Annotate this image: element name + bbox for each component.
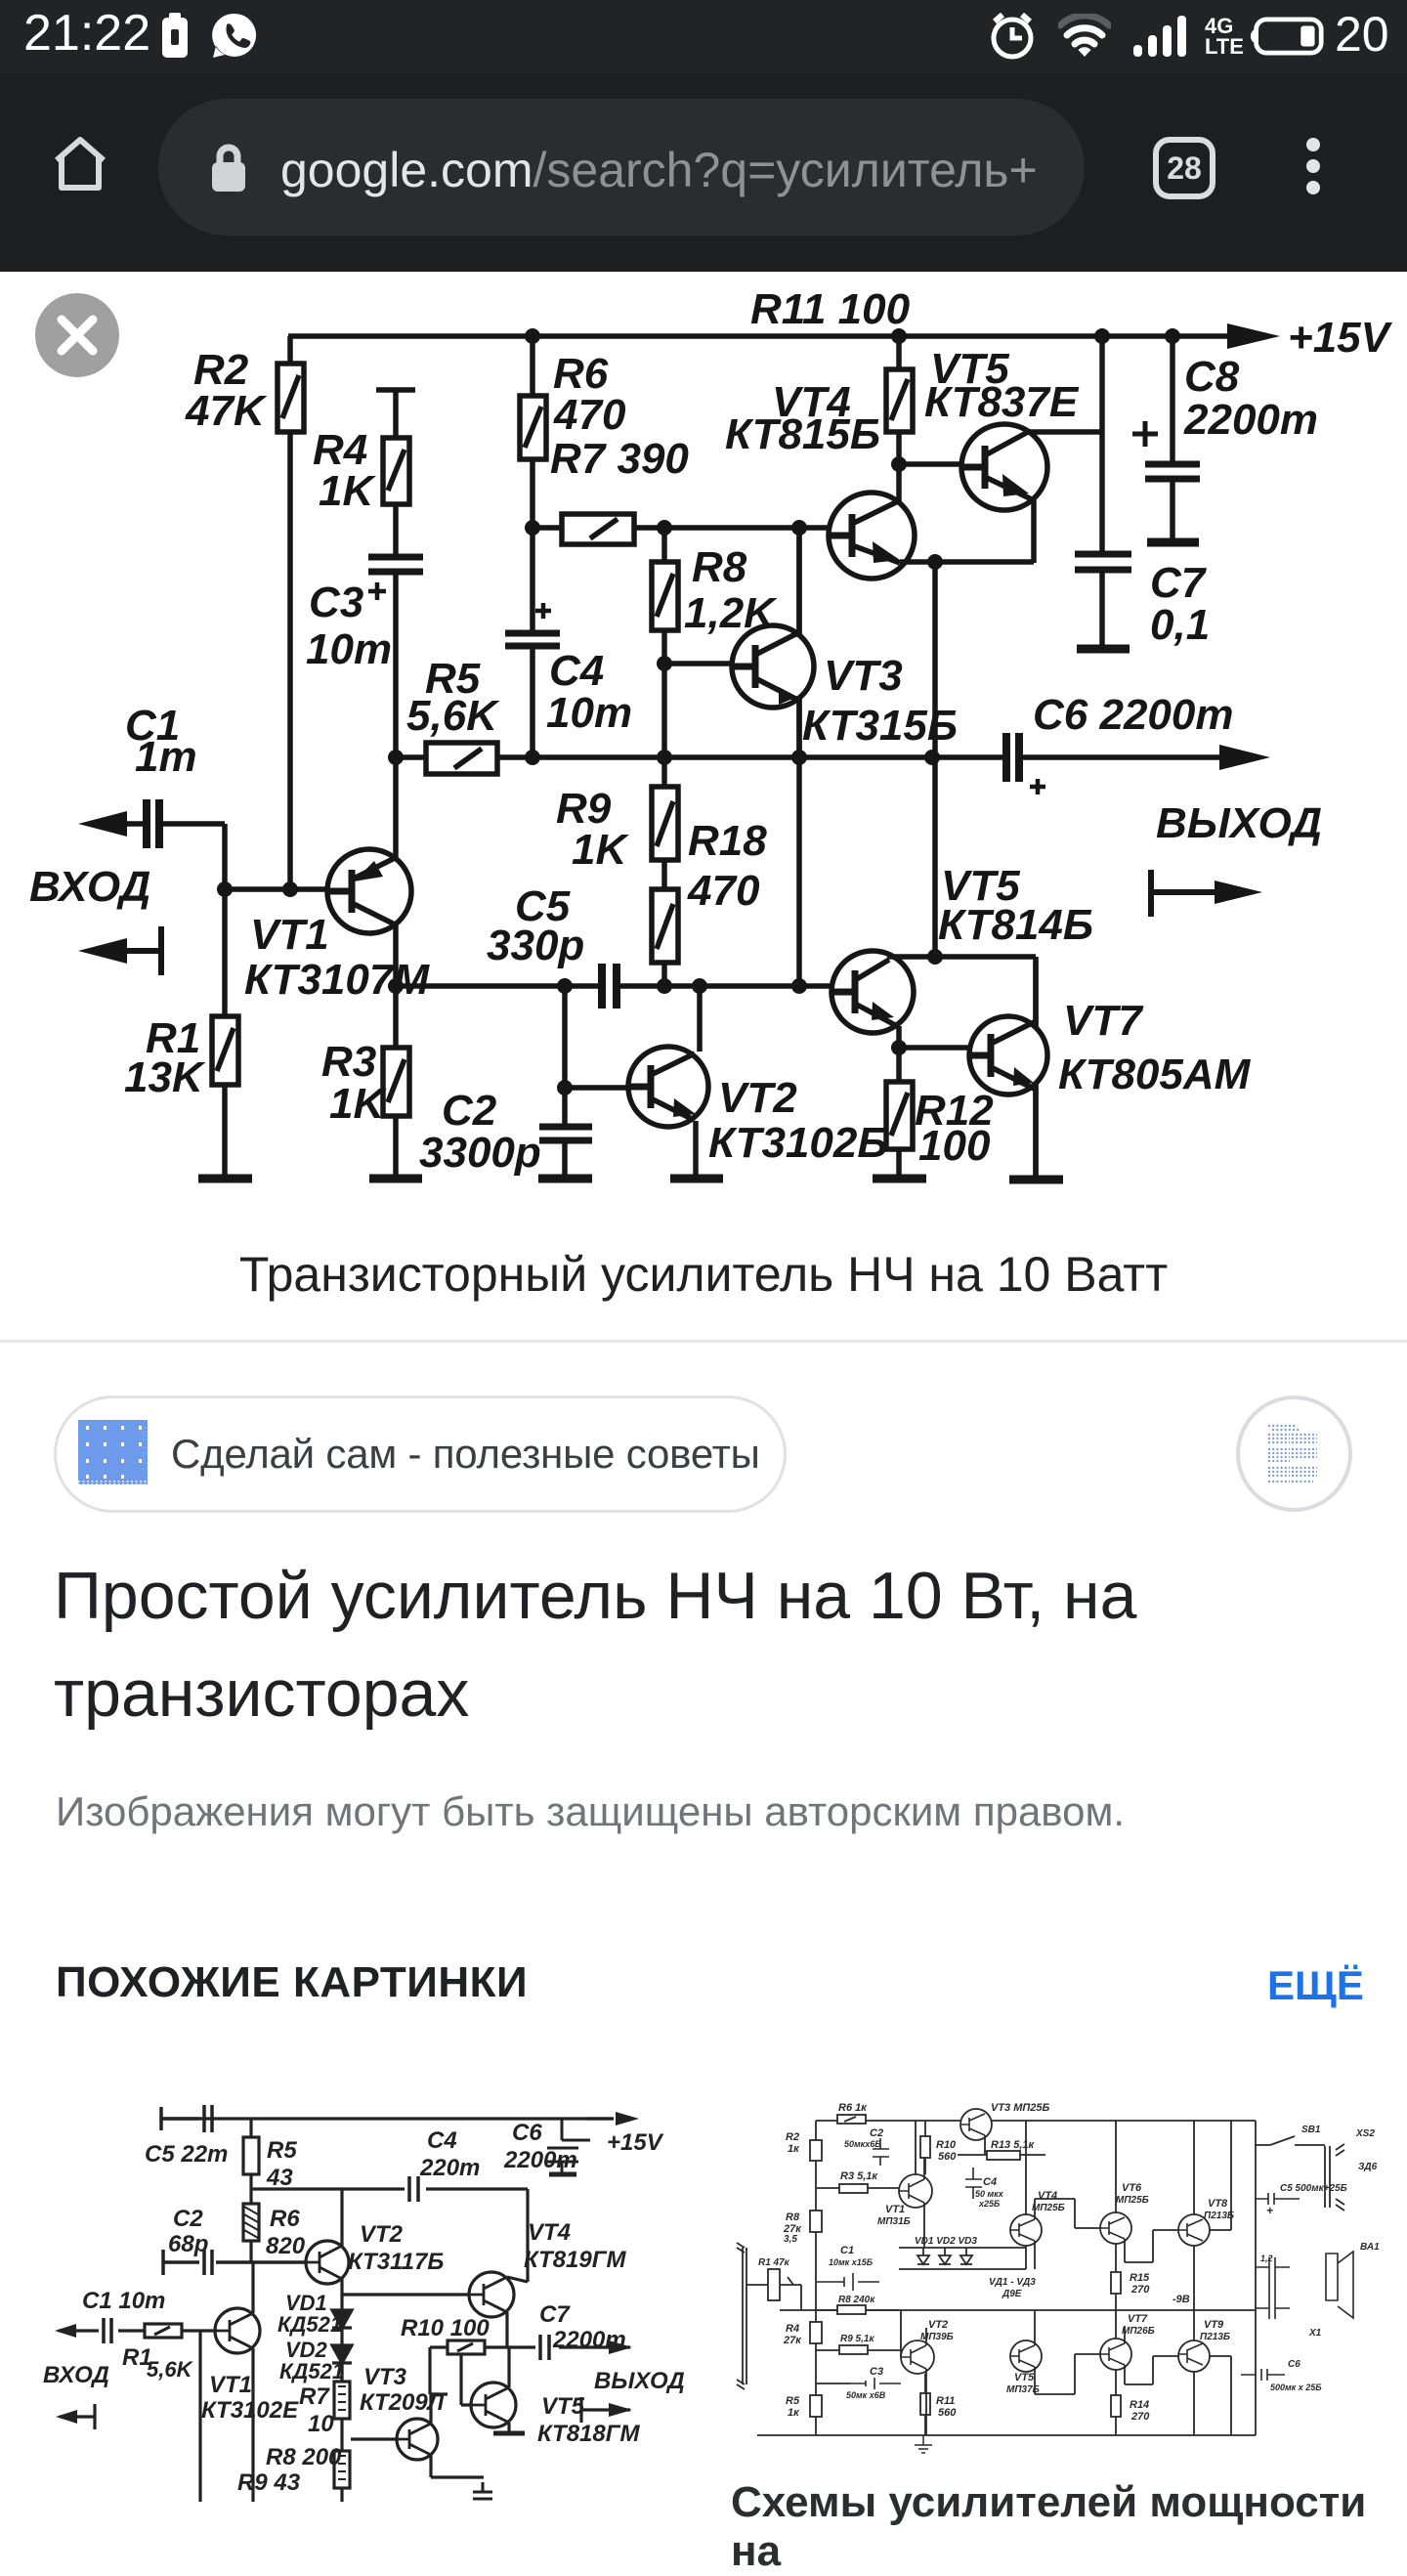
svg-text:50мкх6Б: 50мкх6Б bbox=[844, 2139, 881, 2149]
svg-text:C4: C4 bbox=[549, 647, 604, 695]
svg-text:500мк х 25Б: 500мк х 25Б bbox=[1270, 2383, 1322, 2392]
svg-text:R15: R15 bbox=[1130, 2272, 1150, 2284]
svg-text:КТ3102Е: КТ3102Е bbox=[201, 2397, 299, 2424]
svg-text:43: 43 bbox=[266, 2165, 293, 2191]
svg-text:КТ209Л: КТ209Л bbox=[360, 2389, 445, 2416]
svg-text:Х1: Х1 bbox=[1308, 2328, 1322, 2339]
svg-text:КТ814Б: КТ814Б bbox=[938, 901, 1093, 949]
svg-text:1,2: 1,2 bbox=[1260, 2254, 1273, 2263]
svg-text:VT1: VT1 bbox=[209, 2372, 252, 2398]
svg-text:10m: 10m bbox=[306, 625, 392, 673]
svg-text:КТ818ГМ: КТ818ГМ bbox=[537, 2421, 640, 2447]
svg-text:10m: 10m bbox=[546, 689, 632, 737]
svg-text:C2: C2 bbox=[173, 2206, 203, 2232]
svg-text:П213Б: П213Б bbox=[1204, 2211, 1234, 2221]
svg-text:ВА1: ВА1 bbox=[1360, 2242, 1380, 2253]
svg-text:C1: C1 bbox=[840, 2245, 854, 2256]
svg-text:C4: C4 bbox=[983, 2176, 997, 2188]
svg-text:VT4: VT4 bbox=[1038, 2190, 1057, 2202]
svg-text:SB1: SB1 bbox=[1301, 2125, 1321, 2135]
svg-text:R9 5,1к: R9 5,1к bbox=[840, 2334, 874, 2344]
svg-text:10мк х15Б: 10мк х15Б bbox=[829, 2257, 874, 2267]
svg-text:C3: C3 bbox=[870, 2366, 883, 2378]
svg-text:МП31Б: МП31Б bbox=[877, 2216, 911, 2227]
svg-text:50 мкх: 50 мкх bbox=[975, 2189, 1004, 2199]
svg-text:R11 100: R11 100 bbox=[750, 285, 911, 333]
svg-text:КД521: КД521 bbox=[279, 2359, 344, 2383]
svg-text:VT7: VT7 bbox=[1063, 997, 1144, 1045]
svg-text:220m: 220m bbox=[419, 2155, 480, 2181]
svg-text:VD1 VD2 VD3: VD1 VD2 VD3 bbox=[915, 2236, 977, 2247]
svg-text:VT7: VT7 bbox=[1128, 2313, 1148, 2325]
svg-text:C8: C8 bbox=[1184, 353, 1240, 401]
svg-text:ВЫХОД: ВЫХОД bbox=[1156, 799, 1322, 847]
svg-text:ВХОД: ВХОД bbox=[29, 863, 150, 911]
svg-text:VT3: VT3 bbox=[824, 652, 903, 700]
svg-text:C6: C6 bbox=[512, 2120, 542, 2146]
svg-text:+15V: +15V bbox=[1288, 314, 1393, 362]
svg-text:C4: C4 bbox=[427, 2127, 457, 2154]
svg-text:VT6: VT6 bbox=[1122, 2182, 1142, 2194]
svg-text:ВЫХОД: ВЫХОД bbox=[594, 2368, 685, 2394]
svg-text:C2: C2 bbox=[870, 2127, 883, 2139]
svg-text:МП25Б: МП25Б bbox=[1032, 2203, 1065, 2213]
svg-text:5,6K: 5,6K bbox=[147, 2357, 194, 2382]
svg-text:28: 28 bbox=[1167, 150, 1202, 186]
svg-text:1K: 1K bbox=[329, 1080, 387, 1128]
svg-text:C5 22m: C5 22m bbox=[145, 2141, 228, 2168]
svg-text:68p: 68p bbox=[168, 2231, 208, 2257]
svg-text:1K: 1K bbox=[572, 826, 629, 874]
svg-text:R3: R3 bbox=[321, 1038, 376, 1086]
svg-text:0,1: 0,1 bbox=[1150, 601, 1210, 649]
svg-text:R6 1к: R6 1к bbox=[838, 2102, 868, 2114]
svg-text:МП37Б: МП37Б bbox=[1006, 2384, 1040, 2395]
svg-text:R4: R4 bbox=[786, 2323, 799, 2335]
svg-text:1к: 1к bbox=[788, 2143, 800, 2155]
svg-text:R2: R2 bbox=[786, 2131, 799, 2143]
svg-text:27к: 27к bbox=[783, 2335, 802, 2346]
svg-text:ЗД6: ЗД6 bbox=[1358, 2162, 1378, 2172]
svg-text:470: 470 bbox=[553, 391, 626, 439]
svg-text:VT1: VT1 bbox=[885, 2204, 905, 2215]
svg-text:560: 560 bbox=[938, 2407, 957, 2419]
svg-text:КТ819ГМ: КТ819ГМ bbox=[524, 2247, 626, 2273]
svg-text:C6 2200m: C6 2200m bbox=[1033, 691, 1233, 739]
svg-text:VT3: VT3 bbox=[363, 2364, 407, 2390]
svg-text:+: + bbox=[1266, 2204, 1273, 2217]
svg-text:КТ3117Б: КТ3117Б bbox=[348, 2249, 444, 2275]
svg-text:5,6K: 5,6K bbox=[406, 692, 500, 740]
svg-text:КТ815Б: КТ815Б bbox=[725, 410, 880, 458]
svg-text:C5 500мк+25Б: C5 500мк+25Б bbox=[1280, 2183, 1347, 2194]
svg-text:C3: C3 bbox=[309, 579, 363, 626]
svg-text:R9 43: R9 43 bbox=[237, 2469, 301, 2496]
svg-text:270: 270 bbox=[1130, 2284, 1150, 2296]
svg-text:VT4: VT4 bbox=[528, 2219, 571, 2246]
svg-text:КТ3107М: КТ3107М bbox=[244, 956, 430, 1004]
svg-text:R7: R7 bbox=[299, 2383, 330, 2410]
svg-text:VД1 - VД3: VД1 - VД3 bbox=[989, 2277, 1036, 2288]
svg-text:1,2K: 1,2K bbox=[684, 589, 778, 637]
svg-text:100: 100 bbox=[918, 1122, 991, 1170]
svg-text:R10: R10 bbox=[936, 2139, 957, 2151]
svg-text:3300p: 3300p bbox=[419, 1129, 541, 1177]
svg-text:R5: R5 bbox=[786, 2395, 800, 2407]
svg-text:R3 5,1к: R3 5,1к bbox=[840, 2170, 878, 2182]
svg-text:КТ3102Б: КТ3102Б bbox=[708, 1119, 888, 1167]
svg-text:VT1: VT1 bbox=[250, 911, 329, 959]
svg-text:560: 560 bbox=[938, 2151, 957, 2163]
svg-text:R11: R11 bbox=[936, 2395, 955, 2407]
svg-text:R8 200: R8 200 bbox=[266, 2444, 342, 2470]
svg-text:R8: R8 bbox=[786, 2211, 800, 2223]
svg-text:13K: 13K bbox=[124, 1053, 206, 1101]
svg-text:П213Б: П213Б bbox=[1200, 2332, 1230, 2342]
svg-text:VT8: VT8 bbox=[1208, 2198, 1228, 2210]
svg-text:1к: 1к bbox=[788, 2407, 800, 2419]
svg-text:VT5: VT5 bbox=[1014, 2372, 1035, 2383]
svg-text:3,5: 3,5 bbox=[784, 2234, 797, 2245]
svg-text:КТ837Е: КТ837Е bbox=[924, 378, 1080, 426]
svg-text:R18: R18 bbox=[688, 817, 767, 865]
svg-text:2200m: 2200m bbox=[1183, 396, 1318, 444]
svg-text:2200m: 2200m bbox=[552, 2327, 626, 2353]
svg-text:МП39Б: МП39Б bbox=[920, 2332, 954, 2342]
svg-text:R6: R6 bbox=[270, 2206, 300, 2232]
svg-text:C2: C2 bbox=[442, 1087, 497, 1135]
svg-text:+15V: +15V bbox=[607, 2129, 664, 2156]
svg-text:КТ315Б: КТ315Б bbox=[802, 702, 958, 750]
svg-text:МП26Б: МП26Б bbox=[1122, 2326, 1155, 2337]
svg-text:XS2: XS2 bbox=[1355, 2128, 1375, 2139]
svg-text:C6: C6 bbox=[1288, 2359, 1300, 2370]
svg-text:330p: 330p bbox=[487, 922, 584, 969]
svg-text:х25Б: х25Б bbox=[978, 2199, 1001, 2209]
svg-text:R5: R5 bbox=[267, 2137, 297, 2164]
svg-text:VT2: VT2 bbox=[718, 1074, 797, 1122]
svg-text:-9В: -9В bbox=[1172, 2294, 1190, 2305]
svg-text:2200m: 2200m bbox=[503, 2147, 577, 2173]
svg-text:10: 10 bbox=[308, 2411, 334, 2437]
svg-text:470: 470 bbox=[687, 867, 760, 915]
svg-text:R8: R8 bbox=[692, 543, 747, 591]
svg-text:C7: C7 bbox=[539, 2301, 571, 2328]
svg-text:ВХОД: ВХОД bbox=[43, 2362, 109, 2388]
svg-text:C1 10m: C1 10m bbox=[82, 2288, 165, 2314]
svg-text:47K: 47K bbox=[185, 387, 268, 435]
svg-text:VT2: VT2 bbox=[360, 2221, 404, 2248]
svg-text:R14: R14 bbox=[1130, 2399, 1149, 2411]
svg-text:VT5: VT5 bbox=[541, 2393, 585, 2420]
svg-text:C7: C7 bbox=[1150, 559, 1208, 607]
svg-text:R1 47к: R1 47к bbox=[758, 2257, 790, 2268]
svg-text:VT3 МП25Б: VT3 МП25Б bbox=[991, 2102, 1050, 2114]
svg-text:VT9: VT9 bbox=[1204, 2319, 1224, 2331]
svg-text:1m: 1m bbox=[135, 733, 197, 781]
svg-text:R10 100: R10 100 bbox=[401, 2315, 490, 2341]
svg-text:820: 820 bbox=[266, 2233, 306, 2259]
svg-text:КД521: КД521 bbox=[277, 2312, 342, 2337]
svg-text:R13 5,1к: R13 5,1к bbox=[991, 2139, 1036, 2151]
svg-text:МП25Б: МП25Б bbox=[1116, 2195, 1149, 2206]
svg-text:Д9Е: Д9Е bbox=[1002, 2289, 1022, 2299]
svg-text:50мк х6В: 50мк х6В bbox=[846, 2390, 886, 2400]
svg-text:КТ805АМ: КТ805АМ bbox=[1058, 1051, 1252, 1098]
svg-text:R7 390: R7 390 bbox=[550, 435, 689, 483]
svg-text:R8 240к: R8 240к bbox=[838, 2295, 875, 2305]
svg-text:27к: 27к bbox=[783, 2223, 802, 2235]
svg-text:1K: 1K bbox=[319, 467, 376, 515]
svg-text:VT2: VT2 bbox=[928, 2319, 948, 2331]
svg-text:270: 270 bbox=[1130, 2411, 1150, 2423]
